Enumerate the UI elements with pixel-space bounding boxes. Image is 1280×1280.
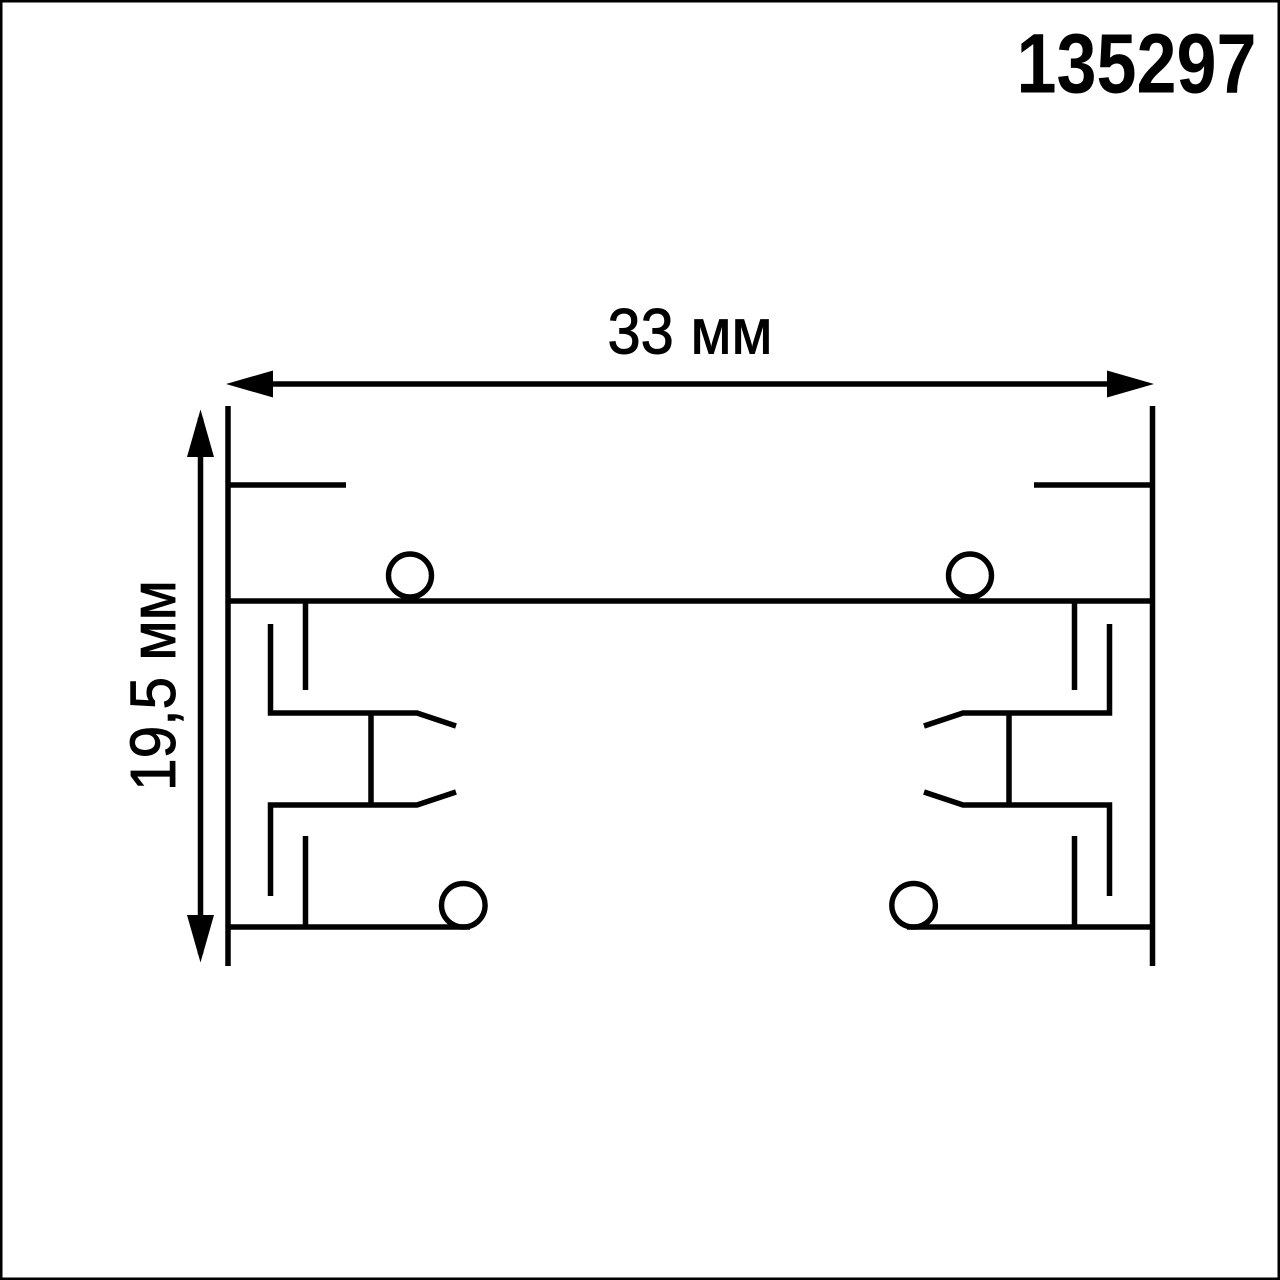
svg-text:33 мм: 33 мм	[608, 297, 773, 368]
svg-text:135297: 135297	[1017, 16, 1257, 111]
svg-text:19,5 мм: 19,5 мм	[118, 580, 189, 791]
